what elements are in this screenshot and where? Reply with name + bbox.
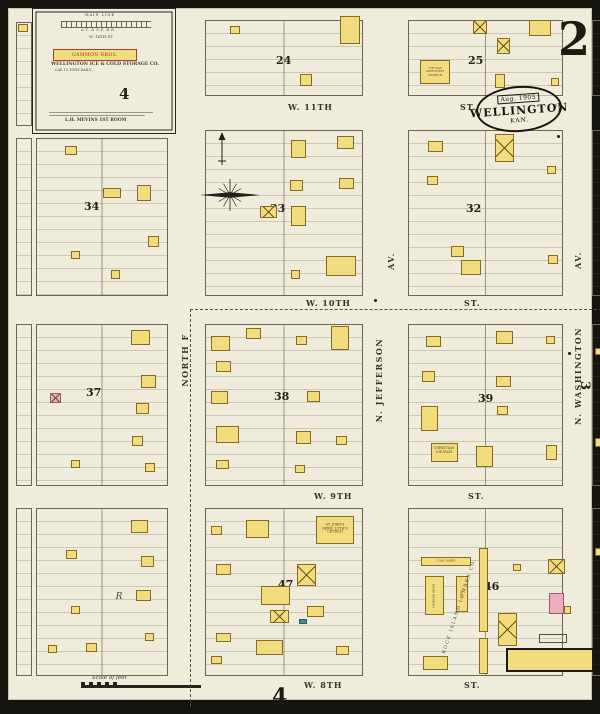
- building: [497, 38, 510, 54]
- street-suffix: ST.: [464, 680, 480, 690]
- block-number: 24: [276, 54, 291, 67]
- inset-footnote-label: L.H. MEVINS 1ST ROOM: [65, 118, 126, 123]
- block-number: 32: [466, 202, 481, 215]
- city-block: [16, 138, 32, 296]
- building: [256, 640, 283, 655]
- building: [479, 638, 488, 674]
- building: [551, 78, 559, 86]
- building: [211, 656, 222, 664]
- building: [539, 634, 567, 643]
- railroad-name-label: A.T. & S.F. R.R.: [81, 28, 116, 32]
- inset-street-label: W. 14TH ST.: [89, 34, 114, 39]
- building: [307, 391, 320, 402]
- map-paper: MAIN LINE A.T. & S.F. R.R. W. 14TH ST. G…: [8, 8, 592, 700]
- building: [141, 375, 156, 388]
- block-number: 39: [478, 392, 493, 405]
- street-name-vertical: AV.: [573, 251, 583, 269]
- sheet-number: 2: [558, 12, 590, 66]
- block-number: 37: [86, 386, 101, 399]
- building: [423, 656, 448, 670]
- building: [428, 141, 443, 152]
- inset-banner: GAMMON BROS.: [53, 49, 137, 61]
- building: [529, 20, 551, 36]
- city-block: [16, 508, 32, 676]
- building: [261, 586, 290, 605]
- building: [131, 330, 150, 345]
- building: [216, 426, 239, 443]
- building: [211, 336, 230, 351]
- building: [48, 645, 57, 653]
- inset-footnote-rule: [49, 115, 145, 116]
- building: [132, 436, 143, 446]
- building: [148, 236, 159, 247]
- building: [71, 606, 80, 614]
- building: [496, 376, 511, 387]
- building: [145, 463, 155, 472]
- building: [451, 246, 464, 257]
- building: [331, 326, 349, 350]
- inset-map: MAIN LINE A.T. & S.F. R.R. W. 14TH ST. G…: [32, 8, 176, 134]
- building: [336, 646, 349, 655]
- building: [564, 606, 571, 614]
- street-name: W. 11TH: [288, 102, 333, 112]
- street-name: W. 10TH: [306, 298, 351, 308]
- map-label: COAL: [460, 590, 463, 599]
- building: [246, 520, 269, 538]
- building: [18, 24, 28, 32]
- city-block: [16, 324, 32, 486]
- building: [299, 619, 307, 624]
- building: [495, 74, 505, 88]
- building: [211, 391, 228, 404]
- building: [595, 548, 600, 556]
- block-number: 34: [84, 200, 99, 213]
- adjacent-sheet-number-bottom: 4: [272, 684, 287, 710]
- inset-sheet-number: 4: [119, 85, 129, 103]
- building: [216, 460, 229, 469]
- hydrant-dot: [557, 135, 560, 138]
- screenshot-root: { "corner": { "sheet": "2", "bottom_shee…: [0, 0, 600, 714]
- compass-rose-icon: [198, 131, 268, 215]
- building: [548, 255, 558, 264]
- building: [496, 331, 513, 344]
- building: [270, 610, 289, 623]
- scale-bar: [81, 685, 201, 688]
- building: [506, 648, 594, 672]
- railroad-track-icon: [61, 21, 151, 28]
- building: [50, 393, 61, 403]
- building: [461, 260, 481, 275]
- building: [291, 140, 306, 158]
- building: [111, 270, 120, 279]
- building: [216, 564, 231, 575]
- map-label: COAL SHED: [436, 559, 455, 562]
- city-block: [592, 130, 600, 296]
- map-label: R: [116, 592, 123, 602]
- building: [595, 438, 600, 447]
- hydrant-dot: [568, 352, 571, 355]
- building: [479, 548, 488, 632]
- map-label: CHRISTIAN CHURCH: [429, 447, 459, 455]
- building: [422, 371, 435, 382]
- building: [291, 206, 306, 226]
- building: [300, 74, 312, 86]
- street-name-vertical: N. WASHINGTON: [573, 327, 583, 425]
- dashed-line-w10th: [190, 309, 600, 310]
- building: [290, 180, 303, 191]
- street-name: W. 9TH: [314, 491, 352, 501]
- hydrant-dot: [374, 299, 377, 302]
- building: [71, 460, 80, 468]
- building: [426, 336, 441, 347]
- building: [548, 559, 565, 574]
- street-name-vertical: NORTH F: [180, 333, 190, 386]
- building: [495, 134, 514, 162]
- building: [216, 633, 231, 642]
- building: [595, 348, 600, 355]
- map-label: LUMBER SHED: [432, 584, 435, 608]
- inset-company-label: WELLINGTON ICE & COLD STORAGE CO.: [51, 62, 159, 67]
- inset-banner-label: GAMMON BROS.: [72, 53, 118, 58]
- building: [336, 436, 347, 445]
- building: [103, 188, 121, 198]
- building: [211, 526, 222, 535]
- street-name: W. 8TH: [304, 680, 342, 690]
- city-block: [592, 20, 600, 96]
- building: [141, 556, 154, 567]
- street-name-vertical: AV.: [386, 252, 396, 270]
- building: [136, 590, 151, 601]
- inset-footnote-rule: [49, 112, 153, 113]
- stamp-state: KAN.: [510, 116, 530, 124]
- building: [246, 328, 261, 339]
- map-label: ST. JOHN'S GERM. LUTH'N CHURCH: [317, 523, 353, 534]
- building: [476, 446, 493, 467]
- city-block: [16, 22, 32, 126]
- building: [421, 406, 438, 431]
- building: [71, 251, 80, 259]
- building: [427, 176, 438, 185]
- railroad-mainline-label: MAIN LINE: [85, 13, 115, 17]
- building: [137, 185, 151, 201]
- building: [136, 403, 149, 414]
- block-number: 38: [274, 390, 289, 403]
- building: [307, 606, 324, 617]
- street-suffix: ST.: [468, 491, 484, 501]
- dashed-line-west-limit: [190, 309, 191, 707]
- building: [297, 564, 316, 586]
- building: [546, 336, 555, 344]
- building: [145, 633, 154, 641]
- building: [291, 270, 300, 279]
- inset-capacity-label: CAP. 15 TONS DAILY.: [55, 68, 92, 72]
- city-block: [408, 130, 563, 296]
- building: [339, 178, 354, 189]
- street-suffix: ST.: [464, 298, 480, 308]
- building: [513, 564, 521, 571]
- building: [66, 550, 77, 559]
- building: [296, 431, 311, 444]
- building: [230, 26, 240, 34]
- building: [546, 445, 557, 460]
- building: [65, 146, 77, 155]
- building: [86, 643, 97, 652]
- building: [497, 406, 508, 415]
- building: [131, 520, 148, 533]
- city-block: [36, 138, 168, 296]
- building: [296, 336, 307, 345]
- building: [295, 465, 305, 473]
- building: [473, 20, 487, 34]
- building: [549, 593, 564, 614]
- building: [337, 136, 354, 149]
- map-label: 7TH DAY ADVENTIST CHURCH: [420, 67, 450, 77]
- building: [216, 361, 231, 372]
- block-number: 25: [468, 54, 483, 67]
- building: [326, 256, 356, 276]
- building: [547, 166, 556, 174]
- street-name-vertical: N. JEFFERSON: [374, 338, 384, 422]
- building: [340, 16, 360, 44]
- building: [498, 613, 517, 646]
